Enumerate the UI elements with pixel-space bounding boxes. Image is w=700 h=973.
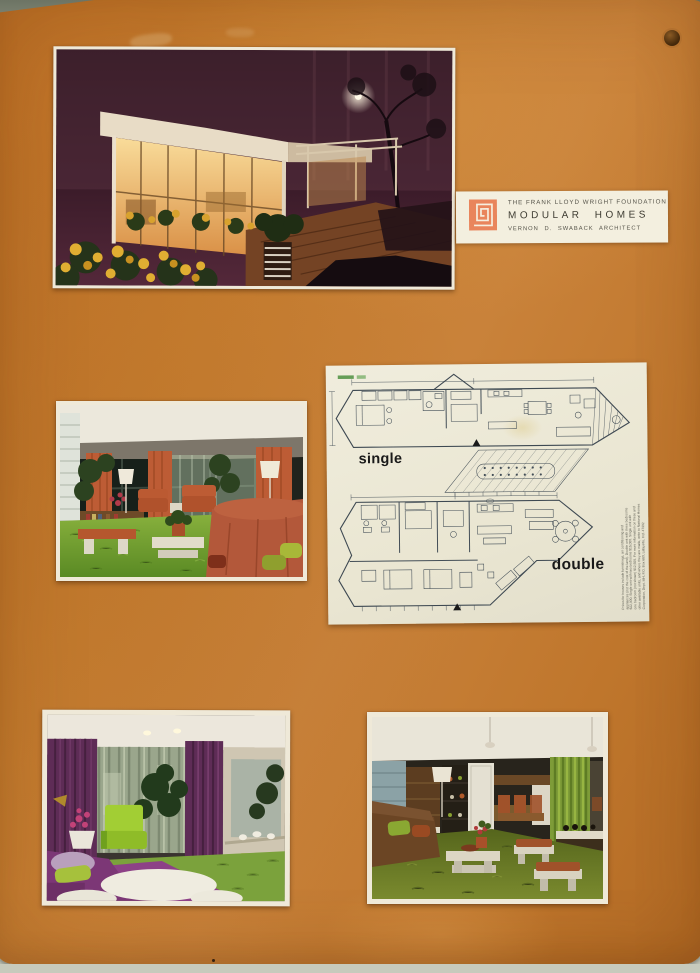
single-plan-outline (336, 373, 630, 448)
photo-exterior-night (53, 46, 456, 289)
photo-living-room-1 (56, 401, 307, 581)
foundation-line: THE FRANK LLOYD WRIGHT FOUNDATION (508, 198, 664, 206)
floor-plan-sheet: single (326, 362, 650, 624)
architect-line: VERNON D. SWABACK ARCHITECT (508, 225, 664, 232)
double-plan-interior (349, 500, 579, 592)
double-plan-outline (338, 500, 593, 607)
photo-living-room-2 (367, 712, 608, 904)
deck-drawing (445, 449, 589, 497)
photo-bedroom (42, 710, 291, 907)
floor-plan-drawing: single (326, 362, 650, 624)
grommet-hole (664, 30, 680, 46)
single-label: single (359, 451, 403, 467)
tape-mark (226, 28, 254, 37)
double-label: double (552, 556, 605, 574)
flw-logo-icon (469, 199, 497, 230)
foundation-label-card: THE FRANK LLOYD WRIGHT FOUNDATION MODULA… (456, 190, 668, 243)
exterior-night-illustration (56, 49, 453, 286)
board-speck (212, 959, 215, 962)
plan-fine-print: Prices for houses include furnishings, a… (620, 501, 646, 609)
bedroom-illustration (47, 715, 285, 902)
card-title: MODULAR HOMES (508, 209, 664, 221)
living-room-2-illustration (372, 717, 603, 899)
single-plan-interior (356, 388, 620, 439)
living-room-1-illustration (60, 405, 303, 577)
presentation-board-photo: THE FRANK LLOYD WRIGHT FOUNDATION MODULA… (0, 0, 700, 973)
